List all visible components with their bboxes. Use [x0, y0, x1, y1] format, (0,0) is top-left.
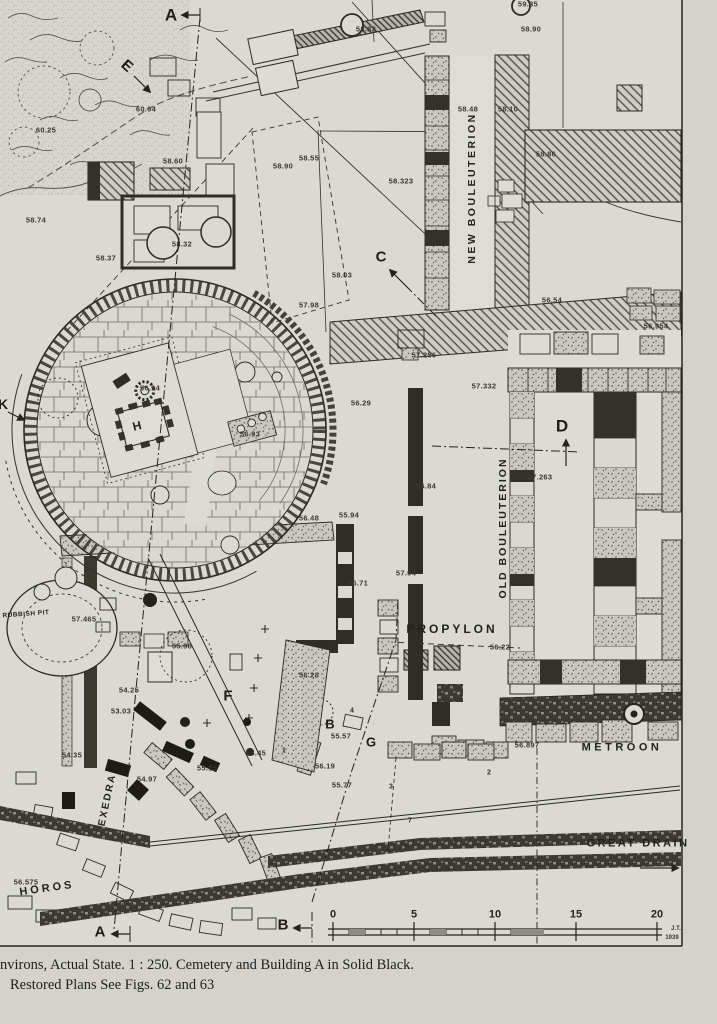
site-plan-drawing — [0, 0, 717, 947]
draftsman-initials: J.T. — [671, 926, 681, 932]
caption-line-2: Restored Plans See Figs. 62 and 63 — [10, 977, 214, 994]
old-bouleuterion — [508, 330, 681, 700]
scanned-page: NEW BOULEUTERIONOLD BOULEUTERIONPROPYLON… — [0, 0, 717, 1024]
draftsman-year: 1939 — [665, 935, 678, 941]
caption-line-1: nvirons, Actual State. 1 : 250. Cemetery… — [0, 957, 414, 974]
new-bouleuterion — [425, 55, 529, 330]
site-plan: NEW BOULEUTERIONOLD BOULEUTERIONPROPYLON… — [0, 0, 717, 947]
